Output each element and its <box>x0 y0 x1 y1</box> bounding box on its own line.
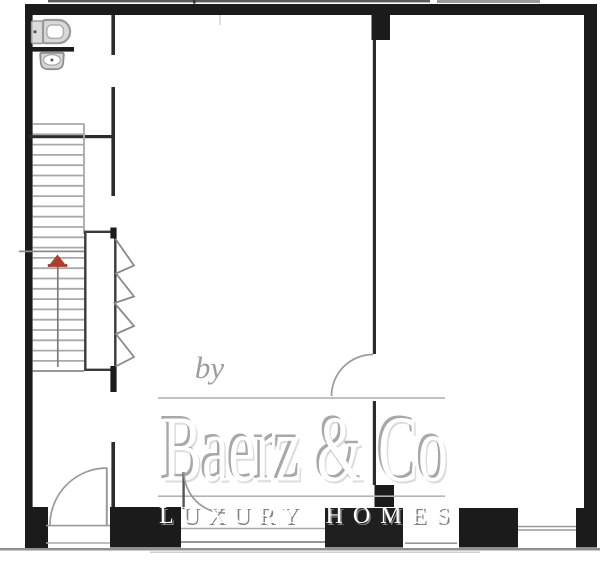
svg-text:HOMES: HOMES <box>326 503 460 529</box>
svg-text:Baerz & Co: Baerz & Co <box>162 398 448 502</box>
svg-text:by: by <box>195 350 225 385</box>
svg-text:LUXURY: LUXURY <box>159 503 307 529</box>
